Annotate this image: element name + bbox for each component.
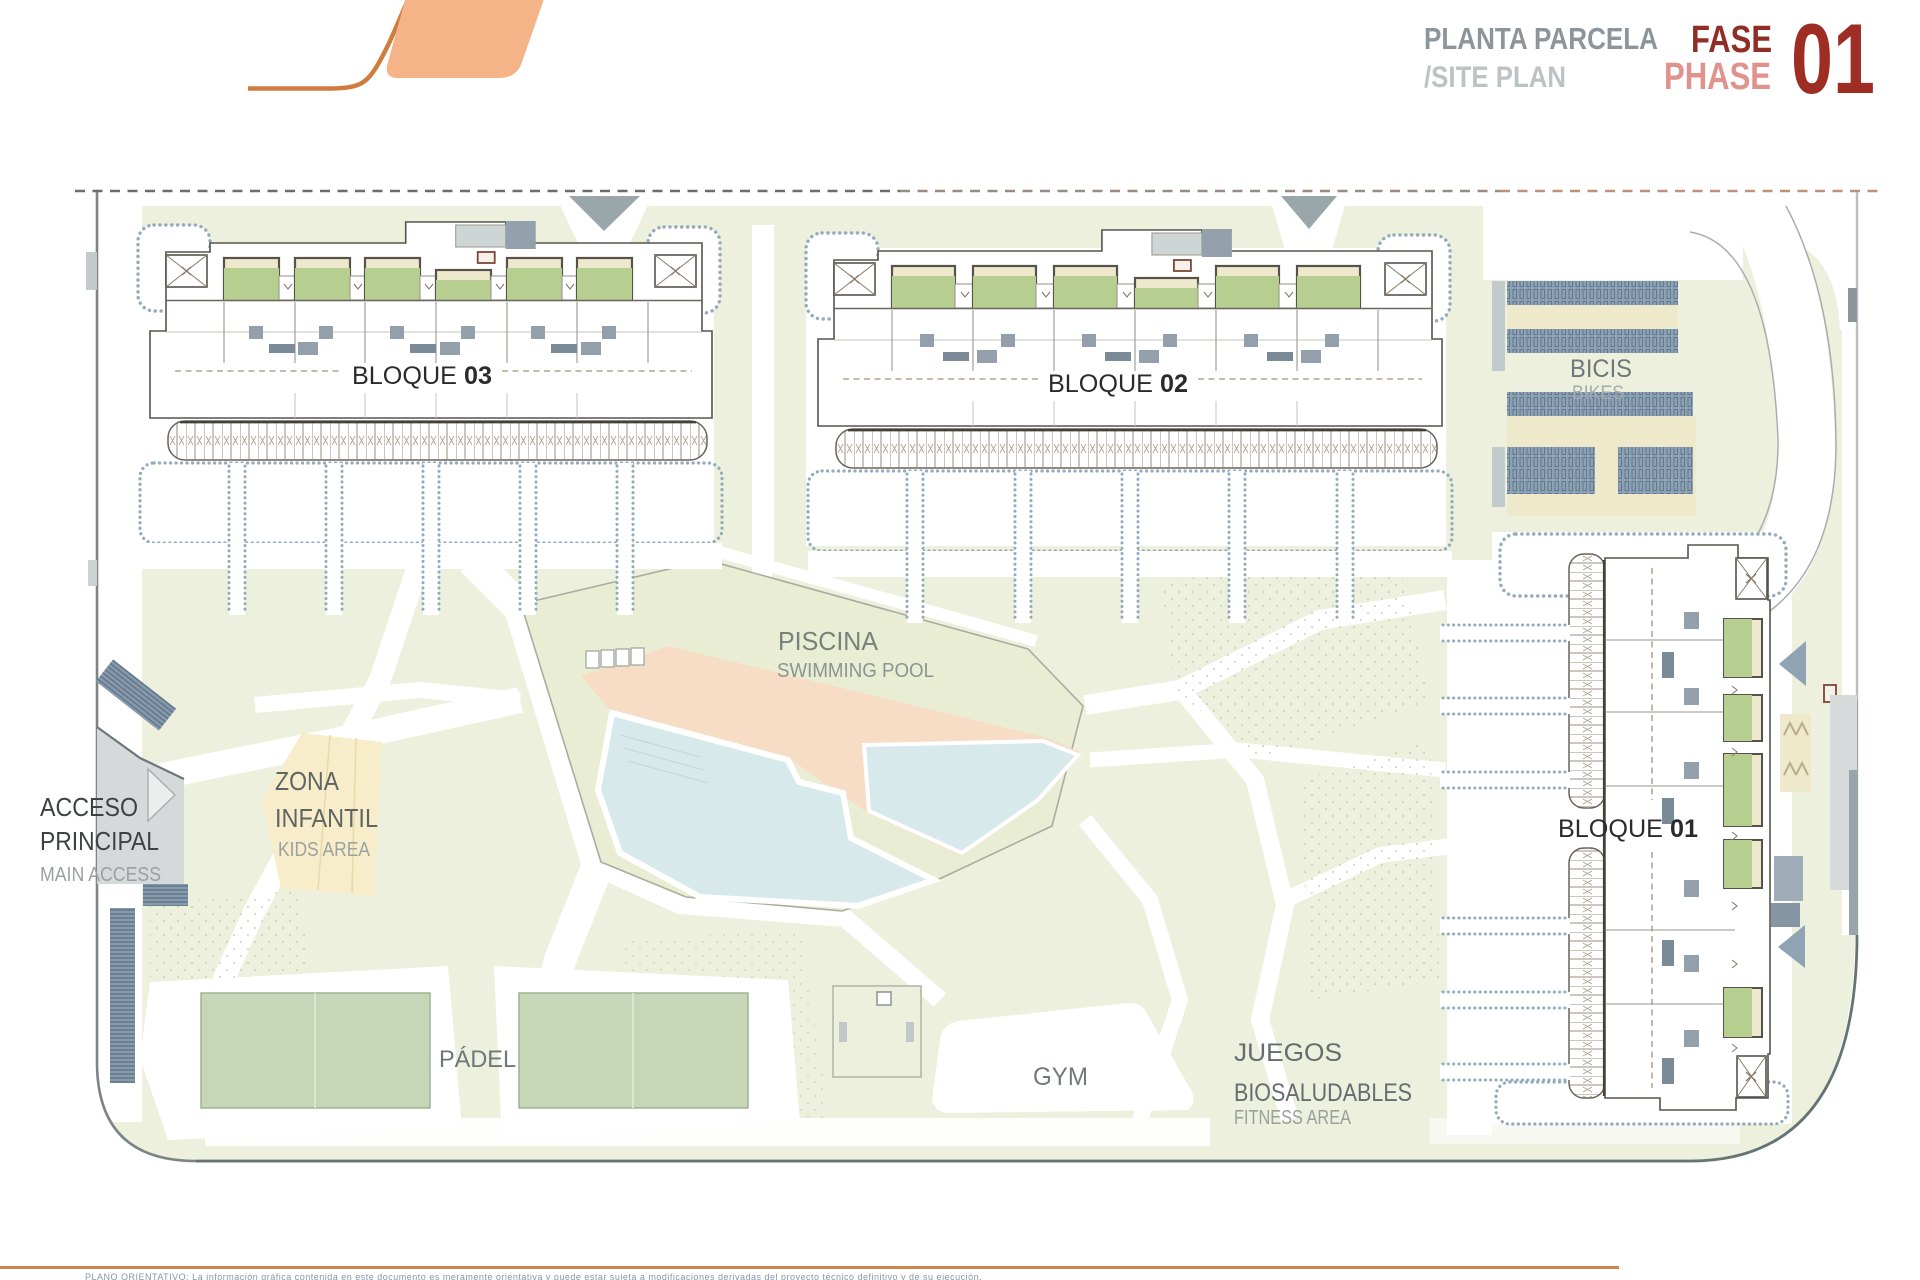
svg-text:BICIS: BICIS (1570, 355, 1632, 383)
svg-text:BLOQUE 03: BLOQUE 03 (352, 362, 492, 390)
svg-text:BLOQUE 02: BLOQUE 02 (1048, 370, 1188, 398)
svg-text:BLOQUE 01: BLOQUE 01 (1558, 815, 1698, 843)
svg-text:PRINCIPAL: PRINCIPAL (40, 826, 159, 856)
svg-text:PISCINA: PISCINA (778, 626, 879, 656)
svg-text:/SITE PLAN: /SITE PLAN (1424, 61, 1566, 94)
svg-text:BIOSALUDABLES: BIOSALUDABLES (1234, 1079, 1412, 1107)
svg-text:JUEGOS: JUEGOS (1234, 1039, 1342, 1067)
svg-text:PÁDEL: PÁDEL (439, 1046, 516, 1073)
svg-text:INFANTIL: INFANTIL (275, 803, 378, 833)
svg-text:01: 01 (1791, 3, 1875, 114)
svg-text:PLANTA PARCELA: PLANTA PARCELA (1424, 21, 1658, 56)
svg-text:SWIMMING POOL: SWIMMING POOL (777, 660, 934, 682)
svg-text:MAIN ACCESS: MAIN ACCESS (40, 864, 161, 886)
svg-text:KIDS AREA: KIDS AREA (278, 839, 371, 861)
svg-text:FITNESS AREA: FITNESS AREA (1234, 1107, 1352, 1129)
svg-text:PLANO ORIENTATIVO: La informac: PLANO ORIENTATIVO: La información gráfic… (85, 1272, 982, 1280)
svg-text:GYM: GYM (1033, 1063, 1088, 1091)
svg-text:ACCESO: ACCESO (40, 792, 138, 822)
svg-text:ZONA: ZONA (275, 766, 340, 796)
svg-text:PHASE: PHASE (1664, 56, 1771, 98)
svg-text:FASE: FASE (1691, 19, 1772, 61)
svg-text:BIKES: BIKES (1572, 383, 1624, 404)
